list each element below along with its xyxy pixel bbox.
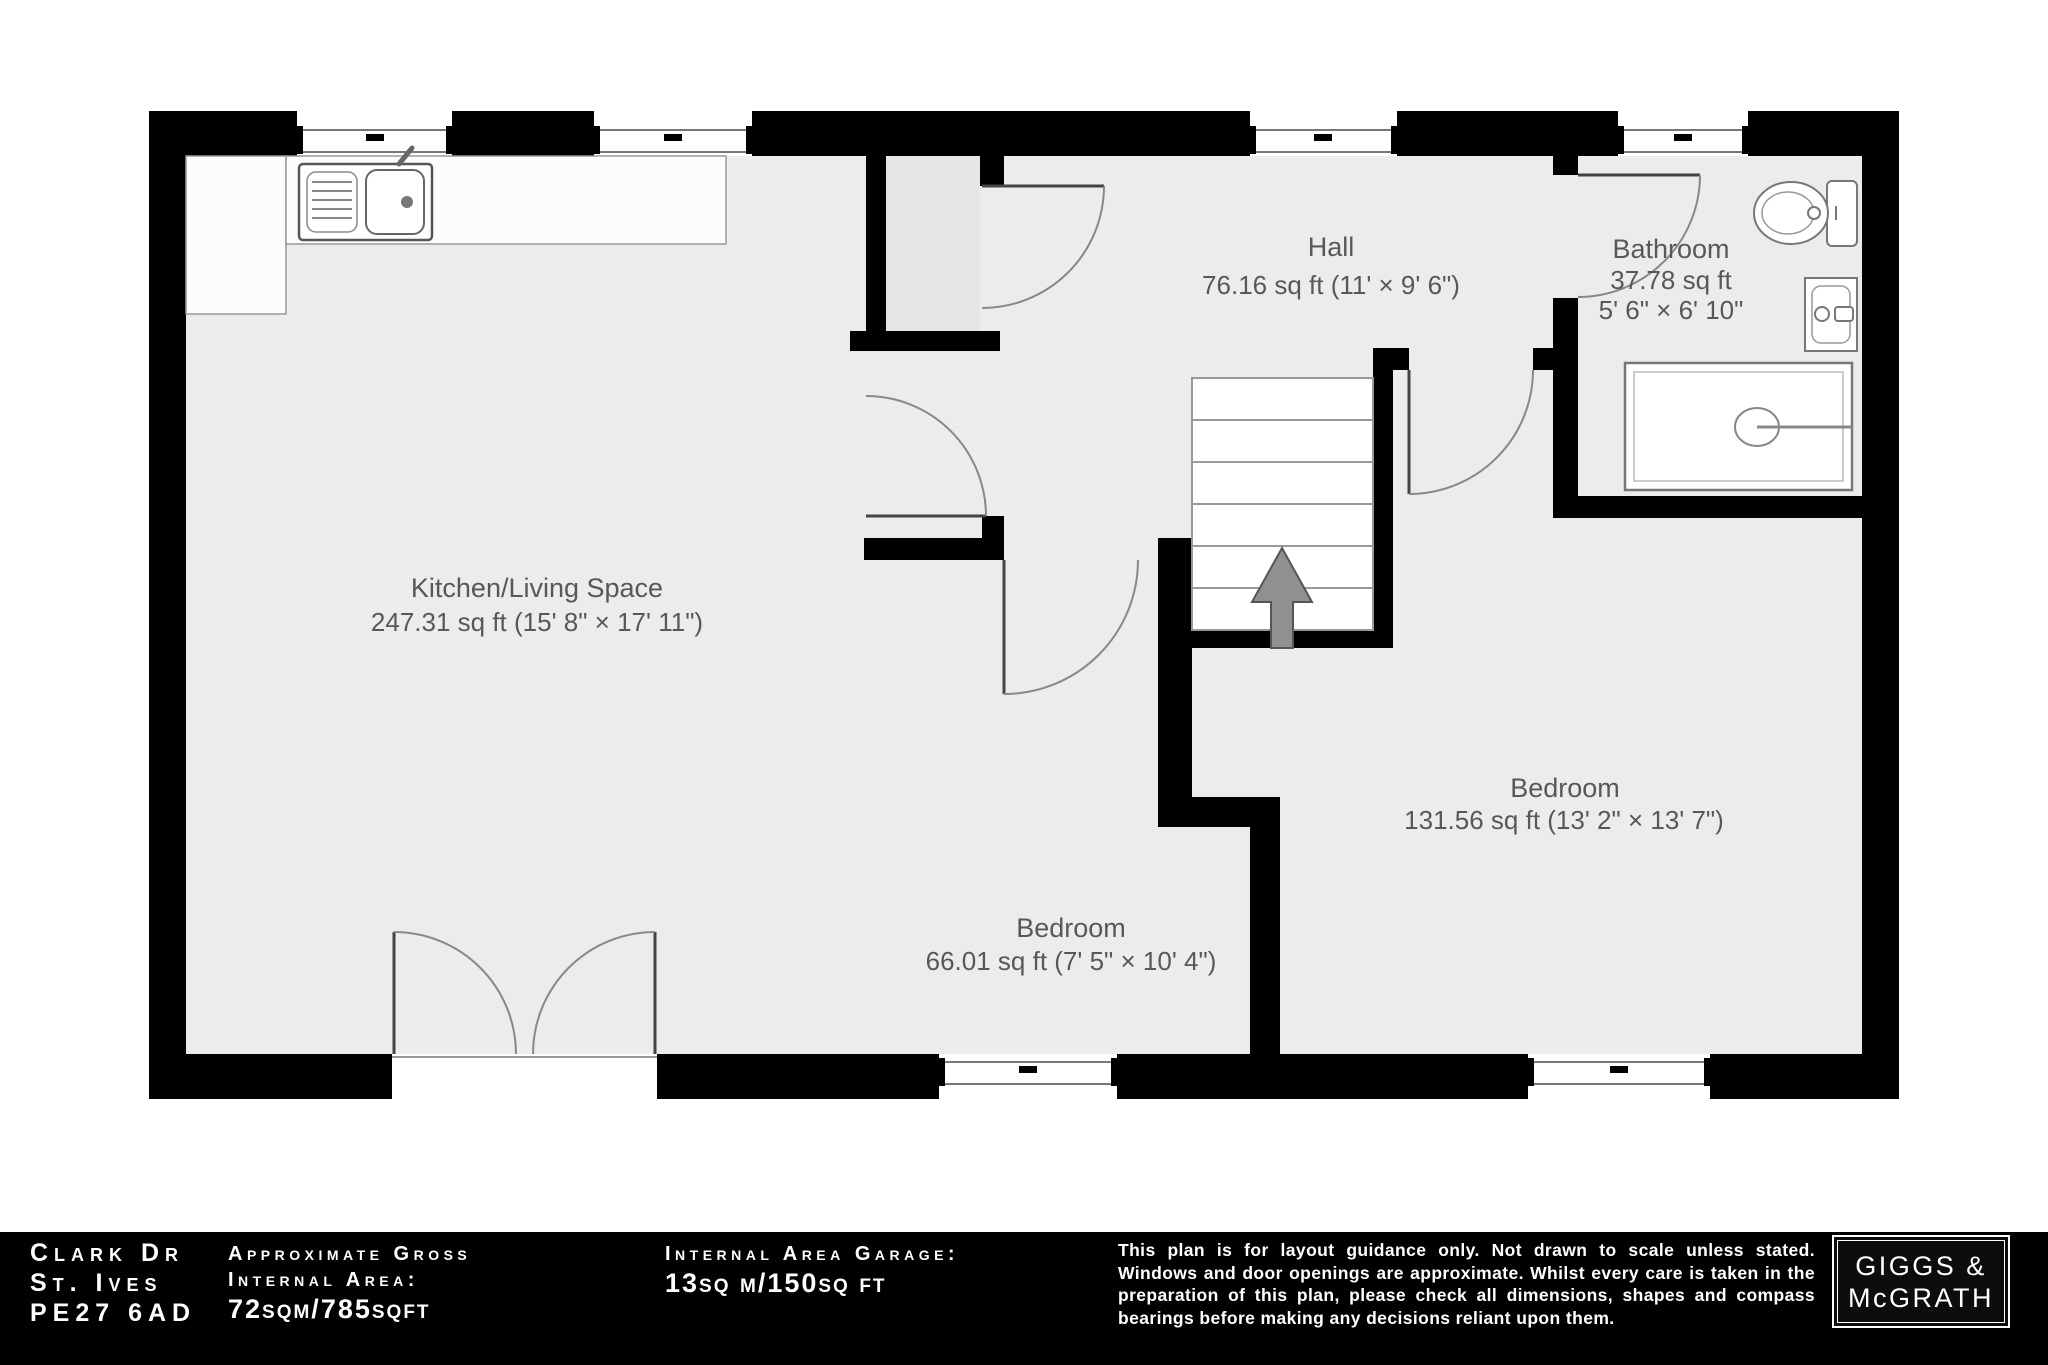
- gross-area-value: 72sqm/785sqft: [228, 1294, 471, 1324]
- footer-bar: Clark Dr St. Ives PE27 6AD Approximate G…: [0, 1232, 2048, 1365]
- floorplan-page: Kitchen/Living Space 247.31 sq ft (15' 8…: [0, 0, 2048, 1365]
- hall-label: Hall: [1308, 232, 1355, 262]
- kitchen-label: Kitchen/Living Space: [411, 573, 663, 603]
- window: [1526, 1054, 1712, 1099]
- floor-plan: Kitchen/Living Space 247.31 sq ft (15' 8…: [0, 0, 2048, 1365]
- basin-icon: [1805, 278, 1857, 351]
- window: [295, 111, 454, 156]
- garage-area-label: Internal Area Garage:: [665, 1241, 959, 1267]
- agency-logo-frame: GIGGS & McGRATH: [1837, 1240, 2005, 1323]
- gross-area-label-line1: Approximate Gross: [228, 1241, 471, 1267]
- shower-icon: [1625, 363, 1852, 490]
- bedroom-large-label: Bedroom: [1510, 773, 1620, 803]
- address-line1: Clark Dr: [30, 1238, 196, 1268]
- bedroom-small-label: Bedroom: [1016, 913, 1126, 943]
- agency-logo: GIGGS & McGRATH: [1832, 1235, 2010, 1328]
- hall-dims: 76.16 sq ft (11' × 9' 6"): [1202, 270, 1460, 300]
- bedroom-large-dims: 131.56 sq ft (13' 2" × 13' 7"): [1404, 805, 1724, 835]
- address-line3: PE27 6AD: [30, 1298, 196, 1328]
- agency-logo-line2: McGRATH: [1848, 1282, 1994, 1314]
- window: [1616, 111, 1750, 156]
- gross-internal-area: Approximate Gross Internal Area: 72sqm/7…: [228, 1241, 471, 1324]
- bathroom-area: 37.78 sq ft: [1610, 265, 1732, 295]
- garage-internal-area: Internal Area Garage: 13sq m/150sq ft: [665, 1241, 959, 1298]
- window: [937, 1054, 1119, 1099]
- property-address: Clark Dr St. Ives PE27 6AD: [30, 1238, 196, 1328]
- window: [592, 111, 754, 156]
- agency-logo-line1: GIGGS &: [1855, 1250, 1987, 1282]
- gross-area-label-line2: Internal Area:: [228, 1267, 471, 1293]
- disclaimer-text: This plan is for layout guidance only. N…: [1118, 1239, 1815, 1329]
- address-line2: St. Ives: [30, 1268, 196, 1298]
- window: [1248, 111, 1399, 156]
- bedroom-small-dims: 66.01 sq ft (7' 5" × 10' 4"): [926, 946, 1217, 976]
- bathroom-dims: 5' 6" × 6' 10": [1599, 295, 1744, 325]
- closet-floor: [886, 156, 980, 331]
- toilet-icon: [1754, 181, 1857, 246]
- stairs: [1192, 378, 1373, 648]
- bathroom-label: Bathroom: [1612, 234, 1729, 264]
- garage-area-value: 13sq m/150sq ft: [665, 1268, 959, 1298]
- kitchen-dims: 247.31 sq ft (15' 8" × 17' 11"): [371, 607, 703, 637]
